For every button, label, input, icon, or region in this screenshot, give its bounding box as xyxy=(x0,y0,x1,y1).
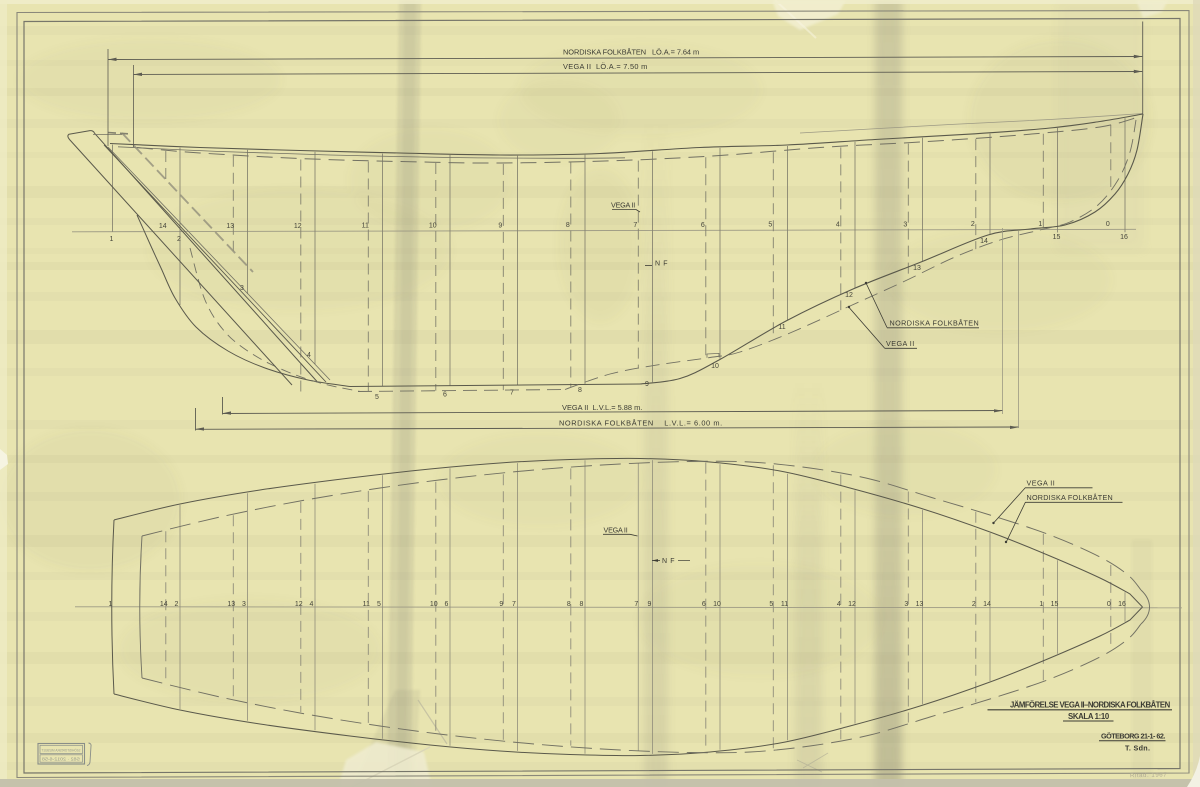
svg-text:8: 8 xyxy=(567,601,571,608)
svg-text:6: 6 xyxy=(443,392,447,399)
svg-text:14: 14 xyxy=(160,601,168,608)
svg-text:10: 10 xyxy=(711,363,719,370)
svg-text:8: 8 xyxy=(578,387,582,394)
svg-text:N F: N F xyxy=(655,261,668,268)
svg-text:Ritad. 1967: Ritad. 1967 xyxy=(1130,772,1167,780)
svg-text:NORDISKA FOLKBÅTEN LÖ.A.= 7.: NORDISKA FOLKBÅTEN LÖ.A.= 7.64 m xyxy=(563,48,700,57)
svg-text:6: 6 xyxy=(445,601,449,608)
svg-text:5: 5 xyxy=(768,222,772,229)
svg-text:11: 11 xyxy=(781,601,788,608)
svg-text:7: 7 xyxy=(510,390,514,397)
svg-text:5: 5 xyxy=(375,394,379,401)
svg-text:1: 1 xyxy=(110,236,114,243)
svg-text:4: 4 xyxy=(837,601,841,608)
svg-text:JÄMFÖRELSE VEGA II–NORDISKA F: JÄMFÖRELSE VEGA II–NORDISKA FOLKBÅTEN xyxy=(1010,701,1171,710)
svg-text:13: 13 xyxy=(227,601,235,608)
svg-text:9: 9 xyxy=(498,222,502,229)
svg-text:0: 0 xyxy=(1107,601,1111,608)
svg-text:4: 4 xyxy=(836,222,840,229)
svg-text:7: 7 xyxy=(634,601,638,608)
svg-text:11: 11 xyxy=(362,223,369,230)
svg-text:14: 14 xyxy=(159,223,167,230)
svg-text:VEGA II LÖ.A.= 7.50 m: VEGA II LÖ.A.= 7.50 m xyxy=(563,62,648,71)
svg-text:1: 1 xyxy=(1038,221,1042,228)
svg-text:5: 5 xyxy=(377,601,381,608)
svg-text:SKALA 1:10: SKALA 1:10 xyxy=(1068,712,1110,721)
svg-text:14: 14 xyxy=(980,238,988,245)
svg-text:9: 9 xyxy=(648,601,652,608)
svg-text:4: 4 xyxy=(310,601,314,608)
svg-text:S82 · 2012-6-58: S82 · 2012-6-58 xyxy=(42,757,80,763)
svg-text:NORDISKA FOLKBÅTEN: NORDISKA FOLKBÅTEN xyxy=(1027,493,1114,502)
svg-text:14: 14 xyxy=(983,601,991,608)
svg-text:8: 8 xyxy=(566,222,570,229)
svg-text:13: 13 xyxy=(226,223,234,230)
svg-text:10: 10 xyxy=(430,601,438,608)
svg-text:NORDISKA FOLKBÅTEN: NORDISKA FOLKBÅTEN xyxy=(890,319,980,328)
svg-text:VEGA II: VEGA II xyxy=(611,201,636,210)
svg-text:7: 7 xyxy=(512,601,516,608)
svg-text:12: 12 xyxy=(845,292,853,299)
svg-text:5: 5 xyxy=(769,601,773,608)
svg-text:9: 9 xyxy=(499,601,503,608)
svg-text:12: 12 xyxy=(294,223,302,230)
svg-text:0: 0 xyxy=(1106,221,1110,228)
svg-text:VEGA II L.V.L.= 5.88 m.: VEGA II L.V.L.= 5.88 m. xyxy=(562,403,643,412)
svg-text:VEGA II: VEGA II xyxy=(1027,479,1056,488)
svg-text:2: 2 xyxy=(971,221,975,228)
svg-text:1: 1 xyxy=(1039,601,1043,608)
svg-text:12: 12 xyxy=(295,601,303,608)
svg-text:3: 3 xyxy=(242,601,246,608)
svg-text:6: 6 xyxy=(701,222,705,229)
svg-text:2: 2 xyxy=(177,236,181,243)
svg-text:16: 16 xyxy=(1120,234,1128,241)
svg-text:15: 15 xyxy=(1051,601,1059,608)
svg-text:3: 3 xyxy=(240,285,244,292)
svg-text:3: 3 xyxy=(903,221,907,228)
svg-text:NORDISKA FOLKBÅTEN L.V.L.=: NORDISKA FOLKBÅTEN L.V.L.= 6.00 m. xyxy=(559,419,723,428)
svg-text:6: 6 xyxy=(702,601,706,608)
svg-text:10: 10 xyxy=(429,222,437,229)
svg-text:GÖTEBORG 21-1- 62.: GÖTEBORG 21-1- 62. xyxy=(1101,731,1166,740)
svg-text:VEGA II: VEGA II xyxy=(886,339,915,348)
svg-text:8: 8 xyxy=(580,601,584,608)
svg-text:10: 10 xyxy=(713,601,721,608)
svg-text:9: 9 xyxy=(645,381,649,388)
svg-text:2: 2 xyxy=(972,601,976,608)
svg-text:VEGA II: VEGA II xyxy=(604,526,629,535)
svg-text:2: 2 xyxy=(175,601,179,608)
svg-text:12: 12 xyxy=(848,601,856,608)
svg-text:13: 13 xyxy=(916,601,924,608)
svg-text:3: 3 xyxy=(904,601,908,608)
svg-text:16: 16 xyxy=(1118,601,1126,608)
svg-text:4: 4 xyxy=(307,352,311,359)
svg-text:7: 7 xyxy=(633,222,637,229)
svg-text:11: 11 xyxy=(778,324,785,331)
svg-text:11: 11 xyxy=(363,601,370,608)
svg-text:15: 15 xyxy=(1053,234,1061,241)
svg-text:T. Sdn.: T. Sdn. xyxy=(1125,744,1150,753)
svg-text:13: 13 xyxy=(913,265,921,272)
svg-text:1: 1 xyxy=(109,601,113,608)
svg-text:N F: N F xyxy=(662,558,675,565)
svg-text:SJÖHISTORISKA MUSEET: SJÖHISTORISKA MUSEET xyxy=(41,748,81,752)
